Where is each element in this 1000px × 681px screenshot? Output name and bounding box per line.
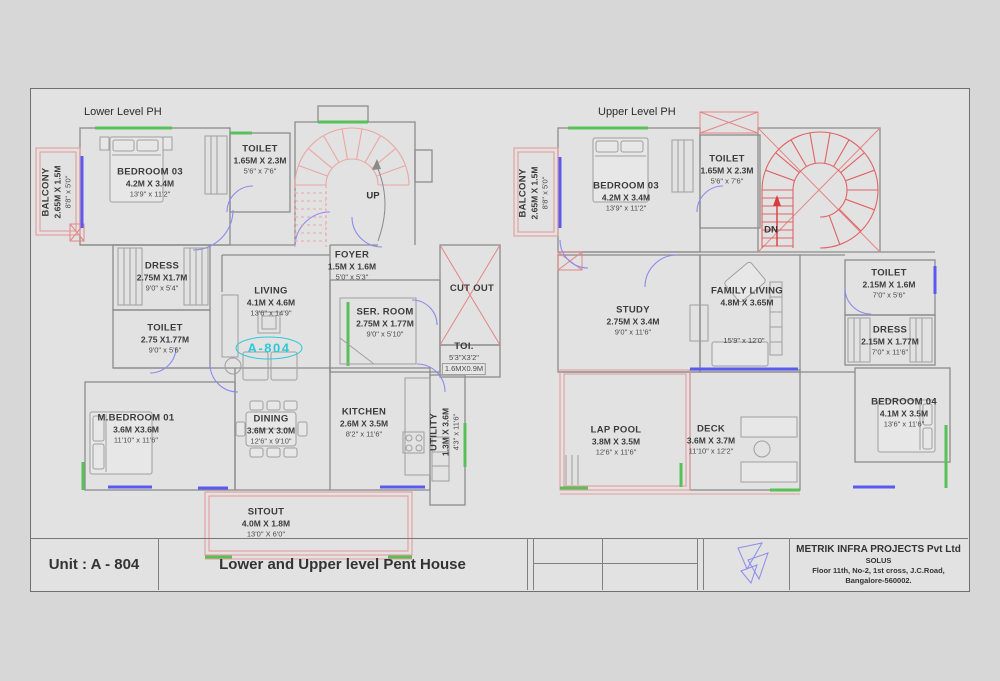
company-name: METRIK INFRA PROJECTS Pvt Ltd (796, 544, 961, 555)
title-block-midline (533, 563, 697, 564)
room-name: FAMILY LIVING (711, 285, 783, 297)
room-dim-ft: 5'6" x 7'6" (244, 167, 277, 177)
room-dim-m: 2.65M X 1.5M (530, 167, 541, 220)
room-dim-m: 2.75M X 3.4M (607, 317, 660, 328)
room-dim-m: 4.2M X 3.4M (602, 193, 650, 204)
room-dim-ft: 12'6" x 11'6" (596, 448, 637, 458)
room-label-family-living: FAMILY LIVING 4.8M X 3.65M (711, 285, 783, 308)
room-name: SITOUT (248, 506, 284, 518)
room-label-balcony-upper: BALCONY 2.65M X 1.5M 8'8" x 5'0" (517, 167, 550, 220)
company-logo (703, 538, 789, 590)
room-name: CUT OUT (450, 283, 494, 295)
room-label-study: STUDY 2.75M X 3.4M 9'0" x 11'6" (607, 304, 660, 337)
room-dim-m: 2.75M X 1.77M (356, 319, 414, 330)
room-dim-ft: 13'6" x 11'6" (884, 420, 925, 430)
room-label-kitchen: KITCHEN 2.6M X 3.5M 8'2" x 11'6" (340, 406, 388, 439)
room-name: BALCONY (40, 167, 52, 216)
room-name: BALCONY (517, 168, 529, 217)
room-label-family-living-ft: 15'9" x 12'0" (723, 336, 764, 346)
room-name: BEDROOM 03 (117, 166, 183, 178)
room-name: TOILET (147, 322, 182, 334)
room-label-dress-right: DRESS 2.15M X 1.77M 7'0" x 11'6" (861, 324, 919, 357)
room-label-bedroom03-upper: BEDROOM 03 4.2M X 3.4M 13'9" x 11'2" (593, 180, 659, 213)
room-dim-m: 4.2M X 3.4M (126, 179, 174, 190)
room-dim-m: 3.6M X 3.0M (247, 426, 295, 437)
room-label-toi: TOI. 5'3"X3'2" 1.6MX0.9M (442, 341, 486, 375)
room-dim-m: 3.8M X 3.5M (592, 437, 640, 448)
room-dim-ft: 13'6" x 14'9" (250, 309, 291, 319)
title-block-divider (527, 538, 528, 590)
room-label-toilet-top-lower: TOILET 1.65M X 2.3M 5'6" x 7'6" (234, 143, 287, 176)
room-dim-m: 1.5M X 1.6M (328, 262, 376, 273)
unit-number-cell: Unit : A - 804 (30, 538, 158, 590)
room-label-foyer: FOYER 1.5M X 1.6M 5'0" x 5'3" (328, 249, 376, 282)
room-name: STUDY (616, 304, 650, 316)
room-dim-ft: 9'0" x 5'6" (149, 346, 182, 356)
room-name: DRESS (873, 324, 907, 336)
room-label-toilet-right: TOILET 2.15M X 1.6M 7'0" x 5'6" (863, 267, 916, 300)
room-dim-m: 2.75M X1.7M (137, 273, 188, 284)
room-dim-m: 4.0M X 1.8M (242, 519, 290, 530)
room-dim-ft: 8'8" x 5'0" (541, 177, 551, 210)
room-dim-m: 1.65M X 2.3M (234, 156, 287, 167)
room-label-bedroom03-lower: BEDROOM 03 4.2M X 3.4M 13'9" x 11'2" (117, 166, 183, 199)
room-name: TOILET (871, 267, 906, 279)
room-label-ser-room: SER. ROOM 2.75M X 1.77M 9'0" x 5'10" (356, 306, 414, 339)
room-dim-m: 2.15M X 1.6M (863, 280, 916, 291)
room-name: UTILITY (428, 413, 440, 451)
room-dim-ft: 11'10" x 12'2" (689, 447, 734, 457)
drawing-page: Lower Level PH Upper Level PH BALCONY 2.… (0, 0, 1000, 681)
room-name: DECK (697, 423, 725, 435)
room-name: BEDROOM 03 (593, 180, 659, 192)
room-dim-m: 1.65M X 2.3M (701, 166, 754, 177)
stair-dn-label: DN (764, 225, 778, 236)
title-block-divider (602, 538, 603, 590)
room-name: TOI. (454, 341, 474, 353)
room-name: FOYER (335, 249, 369, 261)
company-info: METRIK INFRA PROJECTS Pvt Ltd SOLUS Floo… (789, 540, 968, 588)
room-label-utility: UTILITY 1.3M X 3.6M 4'3" x 11'6" (428, 408, 461, 456)
room-label-deck: DECK 3.6M X 3.7M 11'10" x 12'2" (687, 423, 735, 456)
unit-tag-a804: A-804 (248, 341, 291, 356)
room-name: DINING (253, 413, 288, 425)
room-dim-m: 2.75 X1.77M (141, 335, 189, 346)
room-dim-ft: 9'0" x 5'4" (146, 284, 179, 294)
room-name: LAP POOL (591, 424, 642, 436)
room-dim-ft: 8'2" x 11'6" (346, 430, 382, 440)
company-line2: SOLUS (866, 556, 892, 565)
room-name: TOILET (242, 143, 277, 155)
drawing-title-cell: Lower and Upper level Pent House (158, 538, 527, 590)
room-label-sitout: SITOUT 4.0M X 1.8M 13'0" X 6'0" (242, 506, 290, 539)
room-dim-ft: 5'0" x 5'3" (336, 273, 369, 283)
upper-plan-title: Upper Level PH (598, 106, 676, 118)
room-label-toilet-mid-lower: TOILET 2.75 X1.77M 9'0" x 5'6" (141, 322, 189, 355)
room-dim-ft: 5'3"X3'2" (449, 353, 479, 363)
room-label-m-bedroom01: M.BEDROOM 01 3.6M X3.6M 11'10" x 11'6" (98, 412, 175, 445)
room-label-lap-pool: LAP POOL 3.8M X 3.5M 12'6" x 11'6" (591, 424, 642, 457)
title-block-divider (533, 538, 534, 590)
room-dim-ft: 8'8" x 5'0" (64, 176, 74, 209)
room-name: M.BEDROOM 01 (98, 412, 175, 424)
room-label-dining: DINING 3.6M X 3.0M 12'6" x 9'10" (247, 413, 295, 446)
room-label-dress-lower: DRESS 2.75M X1.7M 9'0" x 5'4" (137, 260, 188, 293)
title-block-divider (697, 538, 698, 590)
room-dim-m: 1.3M X 3.6M (441, 408, 452, 456)
company-line4: Bangalore-560002. (845, 576, 911, 585)
room-dim-ft: 4'3" x 11'6" (452, 414, 462, 450)
room-dim-m: 4.1M X 4.6M (247, 298, 295, 309)
room-dim-ft: 7'0" x 11'6" (872, 348, 908, 358)
room-dim-ft: 13'9" x 11'2" (606, 204, 647, 214)
room-dim-ft: 15'9" x 12'0" (723, 336, 764, 346)
room-dim-m: 2.65M X 1.5M (53, 166, 64, 219)
room-dim-ft: 11'10" x 11'6" (114, 436, 158, 446)
room-dim-ft: 9'0" x 11'6" (615, 328, 651, 338)
room-name: SER. ROOM (356, 306, 413, 318)
room-dim-ft: 13'9" x 11'2" (130, 190, 171, 200)
room-label-toilet-upper: TOILET 1.65M X 2.3M 5'6" x 7'6" (701, 153, 754, 186)
room-name: BEDROOM 04 (871, 396, 937, 408)
room-dim-m: 2.6M X 3.5M (340, 419, 388, 430)
room-dim-m: 2.15M X 1.77M (861, 337, 919, 348)
room-dim-ft: 9'0" x 5'10" (367, 330, 404, 340)
company-line3: Floor 11th, No-2, 1st cross, J.C.Road, (812, 566, 945, 575)
room-dim-ft: 12'6" x 9'10" (250, 437, 291, 447)
room-name: LIVING (254, 285, 287, 297)
room-dim-ft: 7'0" x 5'6" (873, 291, 906, 301)
room-dim-m: 1.6MX0.9M (442, 363, 486, 375)
room-label-bedroom04: BEDROOM 04 4.1M X 3.5M 13'6" x 11'6" (871, 396, 937, 429)
room-name: DRESS (145, 260, 179, 272)
room-dim-m: 3.6M X 3.7M (687, 436, 735, 447)
room-label-balcony-lower: BALCONY 2.65M X 1.5M 8'8" x 5'0" (40, 166, 73, 219)
room-dim-ft: 5'6" x 7'6" (711, 177, 744, 187)
lower-plan-title: Lower Level PH (84, 106, 162, 118)
room-name: TOILET (709, 153, 744, 165)
cut-out-label: CUT OUT (450, 283, 494, 295)
room-dim-m: 4.8M X 3.65M (721, 298, 774, 309)
room-name: KITCHEN (342, 406, 386, 418)
room-dim-m: 4.1M X 3.5M (880, 409, 928, 420)
stair-up-label: UP (366, 191, 379, 202)
room-dim-m: 3.6M X3.6M (113, 425, 159, 436)
room-label-living: LIVING 4.1M X 4.6M 13'6" x 14'9" (247, 285, 295, 318)
